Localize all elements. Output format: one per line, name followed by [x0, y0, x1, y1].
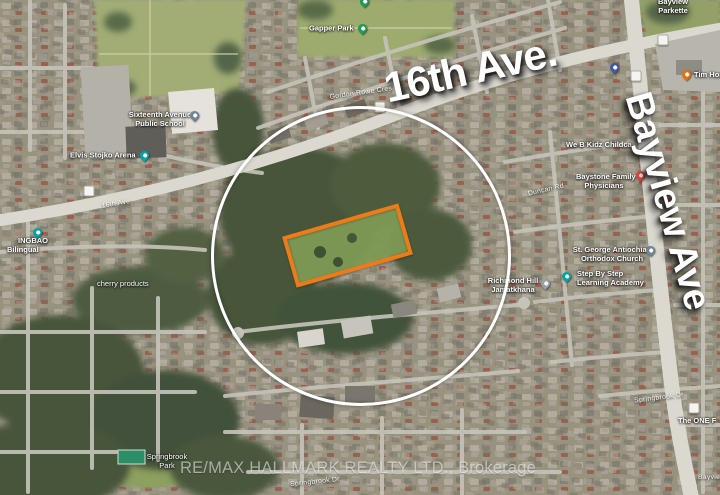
- label-tim-hortons: Tim Horto: [694, 71, 720, 80]
- label-text: We B Kidz Childca: [566, 140, 632, 149]
- road-shield-icon: [84, 186, 95, 197]
- label-text: Gapper Park: [309, 23, 354, 32]
- road-shield-icon: [631, 71, 642, 82]
- label-gapper-park: Gapper Park: [309, 24, 367, 33]
- label-bayview-parkette: Bayview Parkette: [645, 0, 701, 15]
- cul-de-sac: [518, 297, 530, 309]
- label-bilingual-school-line2: Bilingual: [7, 246, 39, 255]
- label-text: The ONE F: [678, 416, 716, 425]
- brokerage-watermark: RE/MAX HALLMARK REALTY LTD., Brokerage: [180, 459, 536, 478]
- label-baystone-family-physicians: Baystone Family Physicians: [576, 173, 632, 190]
- road-shield-icon: [658, 35, 669, 46]
- label-text: Learning Academy: [577, 278, 644, 287]
- label-text: INGBAO: [18, 236, 48, 245]
- label-text: Parkette: [645, 7, 701, 16]
- label-text: cherry products: [97, 279, 149, 288]
- label-step-by-step-line2: Learning Academy: [577, 279, 644, 288]
- label-elvis-stojko-arena: Elvis Stojko Arena: [70, 151, 149, 160]
- label-text: Bilingual: [7, 245, 39, 254]
- label-cherry-products: cherry products: [97, 280, 149, 289]
- arena-pin-icon: [138, 149, 151, 162]
- park-pin-icon: [356, 22, 369, 35]
- label-text: Tim Horto: [694, 70, 720, 79]
- label-text: Physicians: [576, 182, 632, 191]
- street-label-bayview: Bayview: [698, 474, 720, 481]
- label-text: Elvis Stojko Arena: [70, 150, 136, 159]
- satellite-map: Gapper Park Bayview Parkette Tim Horto S…: [0, 0, 720, 495]
- label-the-one: The ONE F: [678, 417, 716, 426]
- road-shield-icon: [689, 403, 700, 414]
- label-we-b-kidz-childcare: We B Kidz Childca: [566, 141, 632, 150]
- label-st-george-antiochian-orthodox-church: St. George Antiochian Orthodox Church: [572, 246, 652, 263]
- label-text: Step By Step: [577, 269, 623, 278]
- label-text: Orthodox Church: [572, 255, 652, 264]
